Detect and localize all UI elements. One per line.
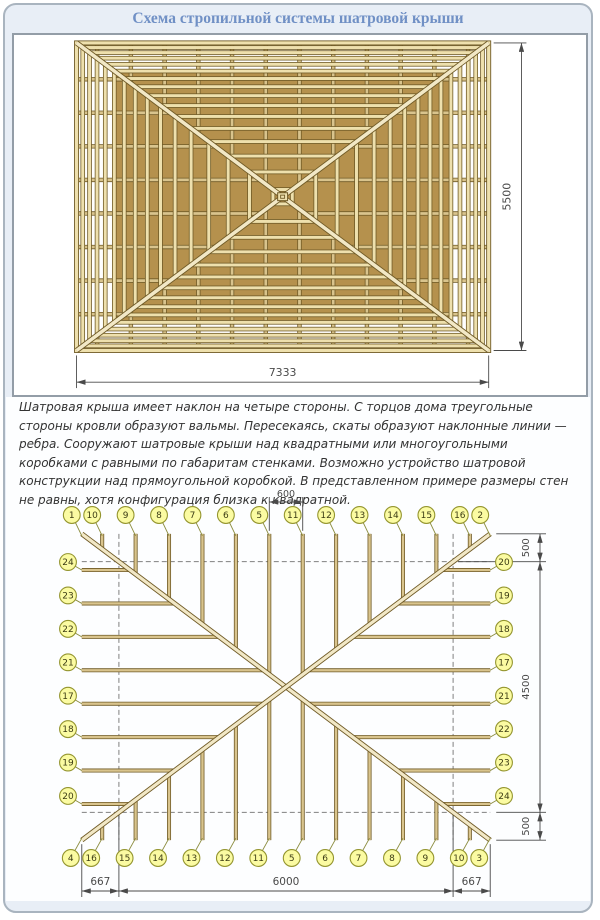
rafter-number: 3 [476, 854, 482, 864]
rafter-plan-box: 73335500 [12, 33, 588, 397]
rafter-number: 12 [320, 511, 331, 521]
right-dimension: 500 [521, 538, 532, 557]
rafter-number: 10 [86, 511, 98, 521]
rafter-number: 15 [119, 854, 130, 864]
plan-width-dimension: 7333 [269, 366, 297, 379]
right-dimension: 500 [521, 817, 532, 836]
rafter-number: 7 [356, 854, 362, 864]
rafter-number: 16 [454, 511, 466, 521]
rafter-number: 7 [190, 511, 196, 521]
bottom-dimension: 667 [462, 876, 482, 888]
rafter-number: 4 [68, 854, 74, 864]
rafter-number: 1 [69, 511, 75, 521]
rafter-number: 24 [62, 558, 74, 568]
rafter-number: 17 [62, 692, 73, 702]
spacing-dimension: 600 [277, 489, 295, 500]
rafter-number: 19 [62, 759, 74, 769]
rafter-number: 10 [453, 854, 465, 864]
rafter-number: 22 [498, 725, 509, 735]
rafter-number: 2 [477, 511, 483, 521]
rafter-number: 8 [156, 511, 162, 521]
plan-height-dimension: 5500 [501, 183, 514, 211]
apex-block [278, 193, 288, 201]
rafter-number: 5 [289, 854, 295, 864]
roof-sheathing-plan-diagram: 73335500 [14, 35, 586, 395]
rafter-number: 14 [152, 854, 164, 864]
rafter-number: 15 [421, 511, 432, 521]
rafter-number: 19 [498, 592, 510, 602]
rafter-number: 9 [123, 511, 129, 521]
rafter-number: 16 [85, 854, 97, 864]
right-dimension: 4500 [521, 674, 532, 699]
rafter-number: 22 [62, 625, 73, 635]
roof-scheme-panel: Схема стропильной системы шатровой крыши… [3, 3, 593, 913]
rafter-number: 6 [322, 854, 328, 864]
rafter-number: 12 [219, 854, 230, 864]
rafter-number: 14 [387, 511, 399, 521]
rafter-number: 24 [498, 792, 510, 802]
rafter-number: 8 [389, 854, 395, 864]
rafter-number: 9 [423, 854, 429, 864]
rafter-number: 13 [354, 511, 365, 521]
rafter-number: 6 [223, 511, 229, 521]
rafter-number: 23 [62, 592, 73, 602]
rafter-number: 18 [62, 725, 74, 735]
bottom-dimension: 667 [90, 876, 110, 888]
rafter-number: 23 [498, 759, 509, 769]
rafter-number: 20 [498, 558, 510, 568]
rafter-number: 11 [287, 511, 298, 521]
page-title: Схема стропильной системы шатровой крыши [5, 10, 591, 28]
rafter-number: 18 [498, 625, 510, 635]
rafter-number: 21 [62, 658, 73, 668]
rafter-number: 13 [186, 854, 197, 864]
rafter-layout-diagram: 6005004500500667600066711098765111213141… [12, 487, 588, 908]
rafter-number: 5 [256, 511, 262, 521]
rafter-number: 21 [498, 692, 509, 702]
rafter-number: 17 [498, 658, 509, 668]
bottom-dimension: 6000 [273, 876, 300, 888]
rafter-number: 20 [62, 792, 74, 802]
rafter-number: 11 [253, 854, 264, 864]
